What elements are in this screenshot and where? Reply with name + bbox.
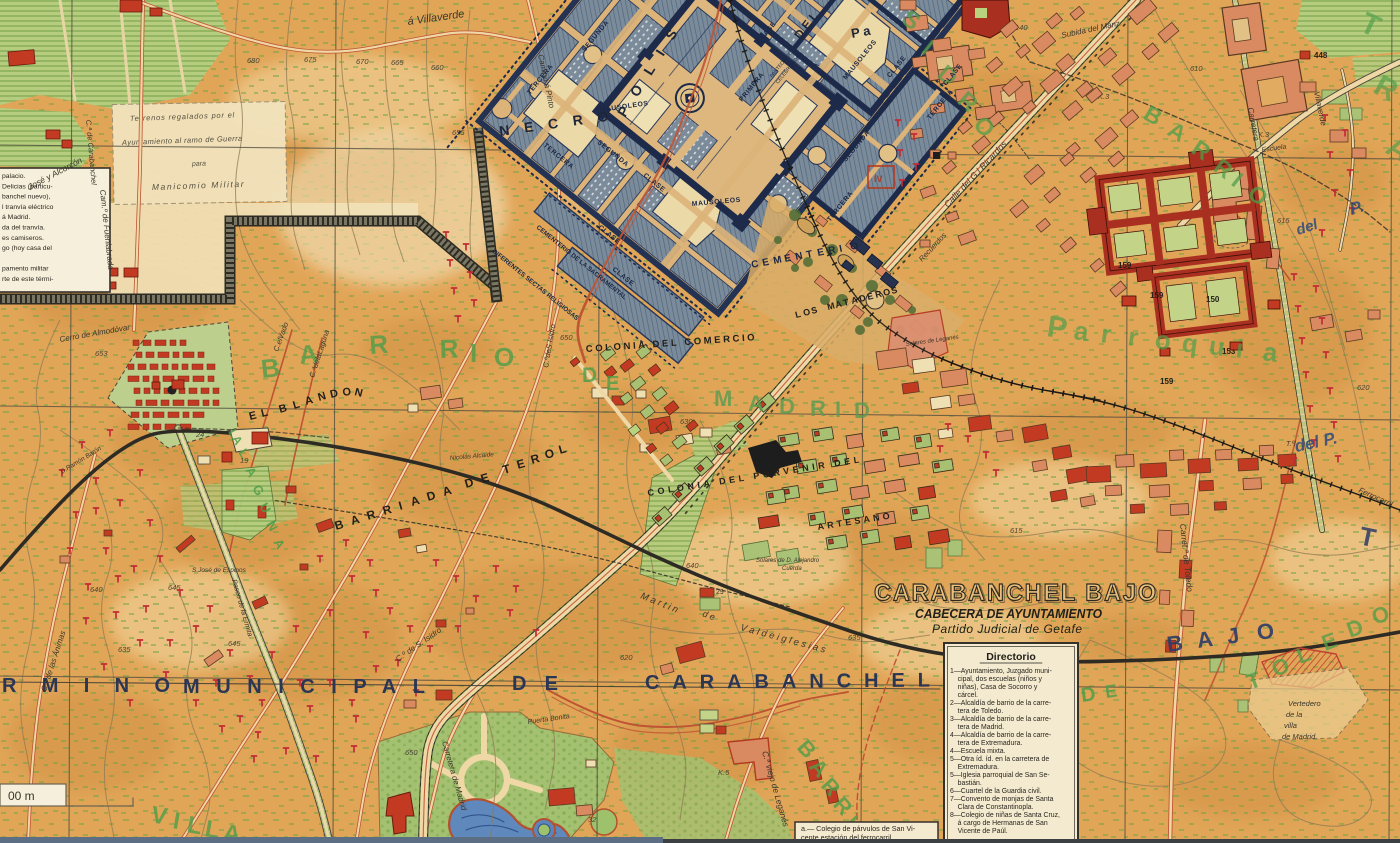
svg-text:150: 150 [1206, 295, 1220, 304]
svg-text:R: R [368, 329, 389, 360]
svg-text:á cargo de Hermanas de San: á cargo de Hermanas de San [950, 820, 1048, 827]
svg-text:R: R [810, 396, 826, 421]
svg-text:4—Escuela mixta.: 4—Escuela mixta. [950, 748, 1006, 755]
svg-text:615: 615 [1010, 526, 1023, 535]
svg-text:rte de este térmi-: rte de este térmi- [2, 276, 53, 283]
svg-text:D: D [1080, 683, 1097, 707]
svg-text:159: 159 [1160, 377, 1174, 386]
svg-text:MUNICIPAL: MUNICIPAL [183, 676, 425, 698]
svg-text:Partido Judicial de Getafe: Partido Judicial de Getafe [932, 622, 1082, 636]
svg-text:640: 640 [90, 585, 103, 594]
svg-text:l tranvía eléctrico: l tranvía eléctrico [2, 204, 54, 211]
svg-text:448: 448 [1314, 51, 1328, 60]
svg-text:a.— Colegio de párvulos de San: a.— Colegio de párvulos de San Vi- [801, 824, 916, 833]
svg-text:bastián.: bastián. [950, 780, 982, 787]
svg-text:pamento militar: pamento militar [2, 266, 49, 273]
svg-text:653: 653 [95, 349, 108, 358]
svg-text:I: I [470, 338, 477, 368]
svg-text:K.5: K.5 [718, 768, 730, 777]
svg-text:tera de Extremadura.: tera de Extremadura. [950, 740, 1022, 747]
svg-text:B: B [259, 352, 281, 384]
svg-text:5—Iglesia parroquial de San Se: 5—Iglesia parroquial de San Se- [950, 772, 1050, 779]
svg-text:675: 675 [304, 55, 317, 64]
svg-text:CARABANCHEL BAJO: CARABANCHEL BAJO [874, 580, 1158, 607]
svg-text:cárcel.: cárcel. [950, 692, 978, 699]
svg-text:para: para [191, 161, 206, 169]
svg-text:E: E [606, 373, 619, 395]
svg-text:Vertedero: Vertedero [1288, 699, 1321, 708]
svg-text:7—Convento de monjas de Santa: 7—Convento de monjas de Santa [950, 796, 1054, 803]
svg-text:29: 29 [716, 589, 724, 596]
svg-text:3—Alcaldía de barrio de la car: 3—Alcaldía de barrio de la carre- [950, 716, 1051, 723]
svg-text:niñas), Casa de Socorro y: niñas), Casa de Socorro y [950, 684, 1038, 691]
svg-text:de la: de la [1286, 710, 1302, 719]
svg-text:6—Cuartel de la Guardia civil.: 6—Cuartel de la Guardia civil. [950, 788, 1042, 795]
svg-text:660: 660 [431, 63, 444, 72]
svg-text:640: 640 [686, 561, 699, 570]
svg-text:620: 620 [1357, 383, 1370, 392]
svg-text:2—Alcaldía de barrio de la car: 2—Alcaldía de barrio de la carre- [950, 700, 1051, 707]
svg-text:5—Otra íd. íd. en la carretera: 5—Otra íd. íd. en la carretera de [950, 756, 1049, 763]
svg-text:4—Alcaldía de barrio de la car: 4—Alcaldía de barrio de la carre- [950, 732, 1051, 739]
svg-text:villa: villa [1284, 721, 1297, 730]
svg-text:D: D [779, 394, 795, 419]
svg-text:Clara de Constantinopla.: Clara de Constantinopla. [950, 804, 1034, 811]
svg-text:8—Colegio de niñas de Santa Cr: 8—Colegio de niñas de Santa Cruz, [950, 812, 1060, 819]
svg-text:banchel nuevo),: banchel nuevo), [2, 194, 50, 201]
svg-text:A: A [748, 391, 764, 416]
svg-text:O: O [1255, 618, 1275, 645]
svg-text:Directorio: Directorio [986, 651, 1036, 663]
svg-text:de Madrid: de Madrid [1282, 732, 1316, 741]
svg-text:go (hoy casa del: go (hoy casa del [2, 245, 52, 252]
svg-text:á Madrid.: á Madrid. [2, 214, 30, 221]
svg-text:620: 620 [620, 653, 633, 662]
svg-text:670: 670 [356, 57, 369, 66]
svg-text:CABECERA DE AYUNTAMIENTO: CABECERA DE AYUNTAMIENTO [915, 606, 1102, 621]
svg-text:D: D [854, 398, 870, 423]
svg-text:D: D [582, 364, 597, 387]
svg-text:da del tranvía.: da del tranvía. [2, 225, 45, 232]
svg-text:T.ºl: T.ºl [1286, 441, 1296, 448]
svg-text:610: 610 [1190, 64, 1203, 73]
svg-text:Cuerda: Cuerda [782, 566, 802, 572]
svg-text:32: 32 [588, 815, 597, 824]
svg-text:650: 650 [560, 333, 573, 342]
svg-text:R: R [439, 333, 459, 364]
svg-text:650: 650 [405, 748, 418, 757]
svg-text:635: 635 [118, 645, 131, 654]
svg-text:665: 665 [391, 58, 404, 67]
svg-text:159: 159 [1118, 261, 1132, 270]
svg-text:cipal, dos escuelas (niños y: cipal, dos escuelas (niños y [950, 676, 1042, 683]
svg-text:680: 680 [247, 56, 260, 65]
svg-text:M: M [714, 386, 732, 411]
svg-text:S.José de Espinos: S.José de Espinos [192, 567, 247, 574]
svg-text:IV: IV [874, 174, 883, 184]
svg-text:tera de Madrid.: tera de Madrid. [950, 724, 1004, 731]
svg-text:1—Ayuntamiento, Juzgado muni-: 1—Ayuntamiento, Juzgado muni- [950, 668, 1052, 675]
svg-text:645: 645 [228, 639, 241, 648]
svg-text:I: I [835, 397, 841, 422]
svg-text:159: 159 [1150, 291, 1164, 300]
svg-text:Extremadura.: Extremadura. [950, 764, 999, 771]
svg-text:Vicente de Paúl.: Vicente de Paúl. [950, 828, 1008, 835]
svg-text:615: 615 [1277, 216, 1290, 225]
svg-text:palacio.: palacio. [2, 173, 26, 180]
svg-text:es camiseros.: es camiseros. [2, 235, 44, 242]
svg-text:Solares de D. Alejandro: Solares de D. Alejandro [756, 558, 820, 564]
svg-text:tera de Toledo.: tera de Toledo. [950, 708, 1003, 715]
svg-text:O: O [494, 342, 514, 372]
svg-text:00 m: 00 m [8, 789, 35, 803]
